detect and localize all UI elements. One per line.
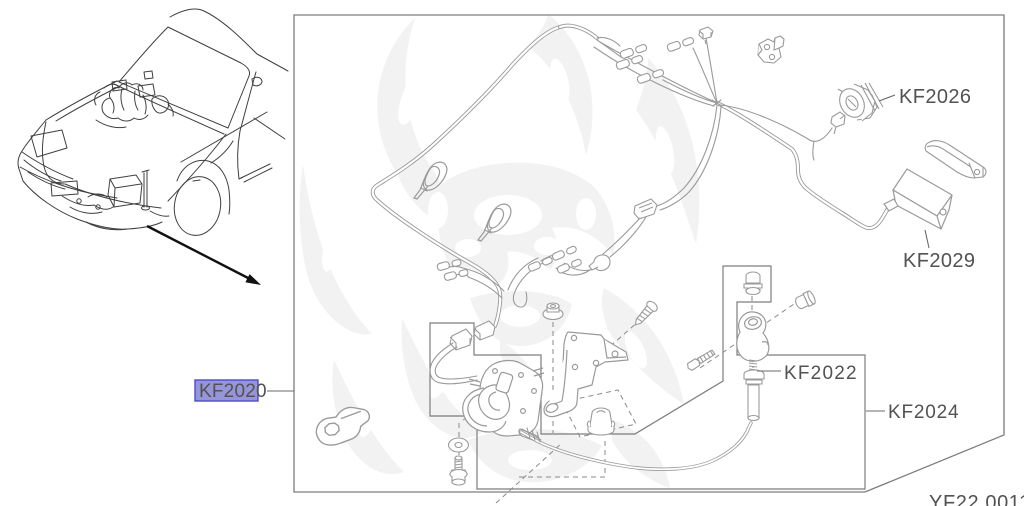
svg-text:KF2022: KF2022 — [784, 363, 858, 384]
svg-text:KF2026: KF2026 — [899, 86, 971, 108]
svg-text:KF2020: KF2020 — [199, 381, 267, 402]
svg-text:YF22 0011: YF22 0011 — [929, 492, 1024, 506]
svg-text:KF2029: KF2029 — [903, 250, 975, 272]
svg-text:KF2024: KF2024 — [888, 402, 959, 423]
